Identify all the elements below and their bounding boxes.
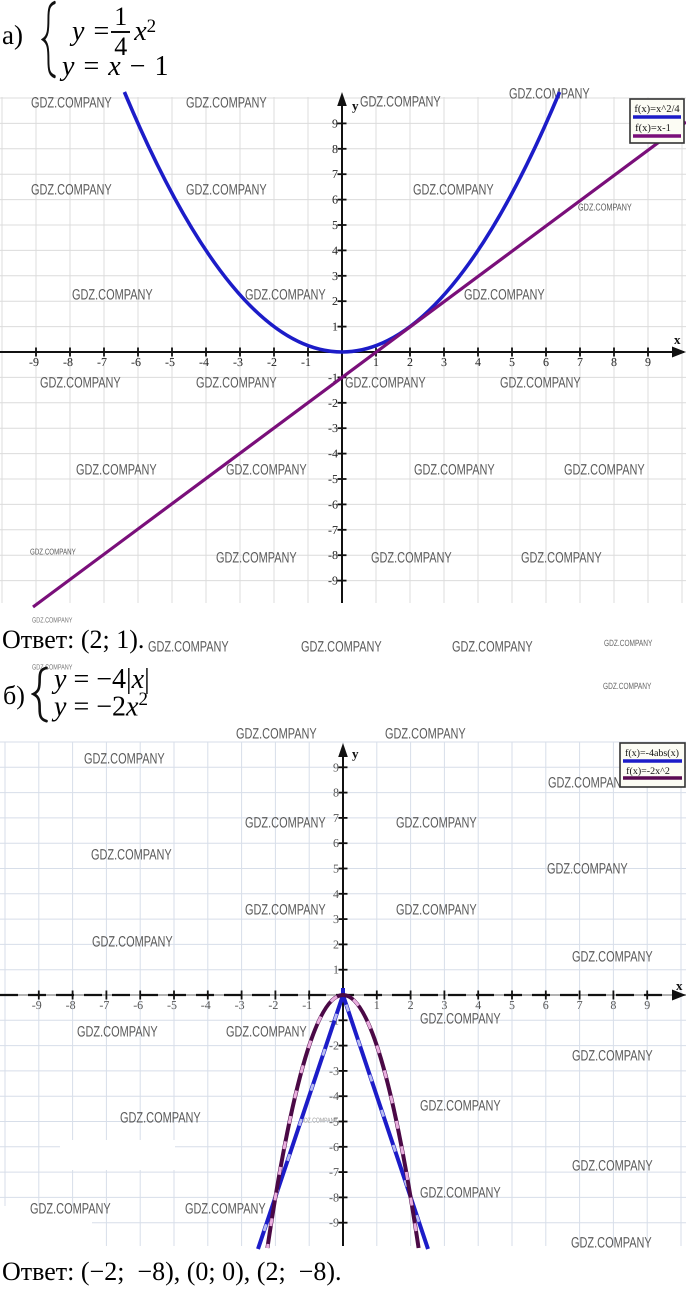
svg-text:GDZ.COMPANY: GDZ.COMPANY (420, 1010, 501, 1027)
svg-text:GDZ.COMPANY: GDZ.COMPANY (385, 725, 466, 742)
svg-text:6: 6 (543, 998, 549, 1012)
svg-text:x: x (676, 978, 683, 993)
svg-text:GDZ.COMPANY: GDZ.COMPANY (464, 286, 545, 303)
svg-text:GDZ.COMPANY: GDZ.COMPANY (301, 638, 382, 655)
svg-text:-7: -7 (99, 998, 109, 1012)
svg-text:-4: -4 (329, 1089, 339, 1103)
svg-text:GDZ.COMPANY: GDZ.COMPANY (571, 1234, 652, 1251)
svg-text:GDZ.COMPANY: GDZ.COMPANY (420, 1097, 501, 1114)
svg-text:-9: -9 (328, 574, 338, 588)
svg-text:f(x)=-2x^2: f(x)=-2x^2 (626, 766, 670, 777)
svg-text:GDZ.COMPANY: GDZ.COMPANY (521, 549, 602, 566)
svg-text:7: 7 (332, 167, 338, 181)
svg-text:-4: -4 (199, 355, 209, 369)
svg-text:8: 8 (332, 142, 338, 156)
svg-text:-8: -8 (328, 548, 338, 562)
svg-text:-8: -8 (63, 355, 73, 369)
svg-text:7: 7 (577, 355, 583, 369)
svg-text:-4: -4 (328, 447, 338, 461)
svg-text:GDZ.COMPANY: GDZ.COMPANY (300, 1117, 338, 1124)
svg-text:GDZ.COMPANY: GDZ.COMPANY (91, 846, 172, 863)
svg-text:GDZ.COMPANY: GDZ.COMPANY (371, 549, 452, 566)
svg-text:9: 9 (333, 760, 339, 774)
svg-text:GDZ.COMPANY: GDZ.COMPANY (76, 461, 157, 478)
svg-text:GDZ.COMPANY: GDZ.COMPANY (603, 681, 651, 691)
svg-text:-5: -5 (328, 472, 338, 486)
svg-text:8: 8 (611, 355, 617, 369)
svg-text:8: 8 (333, 786, 339, 800)
svg-text:2: 2 (407, 355, 413, 369)
svg-text:GDZ.COMPANY: GDZ.COMPANY (245, 286, 326, 303)
svg-text:GDZ.COMPANY: GDZ.COMPANY (604, 638, 652, 648)
svg-text:-8: -8 (66, 998, 76, 1012)
svg-text:GDZ.COMPANY: GDZ.COMPANY (572, 948, 653, 965)
svg-text:GDZ.COMPANY: GDZ.COMPANY (396, 901, 477, 918)
svg-text:3: 3 (332, 269, 338, 283)
svg-text:GDZ.COMPANY: GDZ.COMPANY (40, 374, 121, 391)
svg-text:-2: -2 (268, 998, 278, 1012)
svg-text:GDZ.COMPANY: GDZ.COMPANY (572, 1047, 653, 1064)
svg-text:9: 9 (645, 355, 651, 369)
svg-text:-3: -3 (235, 998, 245, 1012)
svg-text:9: 9 (644, 998, 650, 1012)
svg-text:-3: -3 (328, 421, 338, 435)
svg-text:5: 5 (509, 355, 515, 369)
svg-text:5: 5 (509, 998, 515, 1012)
svg-text:6: 6 (332, 193, 338, 207)
svg-text:GDZ.COMPANY: GDZ.COMPANY (77, 1023, 158, 1040)
svg-text:GDZ.COMPANY: GDZ.COMPANY (186, 94, 267, 111)
svg-text:GDZ.COMPANY: GDZ.COMPANY (84, 750, 165, 767)
svg-text:2: 2 (332, 294, 338, 308)
svg-text:GDZ.COMPANY: GDZ.COMPANY (31, 181, 112, 198)
svg-text:GDZ.COMPANY: GDZ.COMPANY (226, 461, 307, 478)
svg-text:GDZ.COMPANY: GDZ.COMPANY (578, 203, 632, 214)
svg-text:GDZ.COMPANY: GDZ.COMPANY (30, 547, 76, 557)
svg-text:-2: -2 (267, 355, 277, 369)
svg-text:4: 4 (333, 887, 339, 901)
svg-text:7: 7 (333, 811, 339, 825)
svg-text:GDZ.COMPANY: GDZ.COMPANY (396, 814, 477, 831)
svg-text:GDZ.COMPANY: GDZ.COMPANY (413, 181, 494, 198)
svg-text:-2: -2 (329, 1039, 339, 1053)
svg-text:GDZ.COMPANY: GDZ.COMPANY (32, 616, 72, 625)
svg-text:6: 6 (543, 355, 549, 369)
svg-text:8: 8 (610, 998, 616, 1012)
svg-text:GDZ.COMPANY: GDZ.COMPANY (509, 85, 590, 102)
svg-text:-6: -6 (328, 497, 338, 511)
svg-text:f(x)=x-1: f(x)=x-1 (635, 123, 671, 134)
svg-text:5: 5 (332, 218, 338, 232)
svg-text:GDZ.COMPANY: GDZ.COMPANY (148, 638, 229, 655)
svg-text:GDZ.COMPANY: GDZ.COMPANY (564, 461, 645, 478)
svg-text:GDZ.COMPANY: GDZ.COMPANY (452, 638, 533, 655)
svg-text:GDZ.COMPANY: GDZ.COMPANY (216, 549, 297, 566)
svg-text:-7: -7 (328, 523, 338, 537)
svg-text:y: y (352, 746, 359, 761)
svg-text:GDZ.COMPANY: GDZ.COMPANY (92, 933, 173, 950)
svg-text:2: 2 (333, 937, 339, 951)
svg-text:-1: -1 (302, 998, 312, 1012)
svg-text:3: 3 (441, 355, 447, 369)
svg-text:-8: -8 (329, 1190, 339, 1204)
svg-text:GDZ.COMPANY: GDZ.COMPANY (547, 860, 628, 877)
svg-text:GDZ.COMPANY: GDZ.COMPANY (572, 1157, 653, 1174)
svg-text:7: 7 (577, 998, 583, 1012)
svg-text:-9: -9 (29, 355, 39, 369)
svg-text:6: 6 (333, 836, 339, 850)
svg-text:-5: -5 (165, 355, 175, 369)
svg-text:4: 4 (475, 355, 481, 369)
svg-text:GDZ.COMPANY: GDZ.COMPANY (245, 814, 326, 831)
svg-text:-1: -1 (301, 355, 311, 369)
svg-text:GDZ.COMPANY: GDZ.COMPANY (226, 1023, 307, 1040)
svg-text:f(x)=-4abs(x): f(x)=-4abs(x) (625, 748, 679, 759)
svg-text:GDZ.COMPANY: GDZ.COMPANY (72, 286, 153, 303)
svg-text:GDZ.COMPANY: GDZ.COMPANY (500, 374, 581, 391)
svg-text:-9: -9 (32, 998, 42, 1012)
svg-text:3: 3 (333, 912, 339, 926)
svg-text:-3: -3 (233, 355, 243, 369)
svg-text:4: 4 (332, 243, 338, 257)
svg-text:2: 2 (408, 998, 414, 1012)
svg-text:-6: -6 (329, 1140, 339, 1154)
svg-text:GDZ.COMPANY: GDZ.COMPANY (245, 901, 326, 918)
svg-text:y: y (352, 98, 359, 113)
svg-text:1: 1 (374, 998, 380, 1012)
svg-text:1: 1 (332, 320, 338, 334)
svg-text:GDZ.COMPANY: GDZ.COMPANY (186, 181, 267, 198)
svg-text:-6: -6 (131, 355, 141, 369)
svg-text:GDZ.COMPANY: GDZ.COMPANY (120, 1109, 201, 1126)
svg-text:5: 5 (333, 862, 339, 876)
svg-text:-7: -7 (329, 1165, 339, 1179)
svg-text:GDZ.COMPANY: GDZ.COMPANY (345, 374, 426, 391)
svg-text:-3: -3 (329, 1064, 339, 1078)
svg-text:-4: -4 (201, 998, 211, 1012)
svg-text:x: x (674, 332, 681, 347)
svg-text:f(x)=x^2/4: f(x)=x^2/4 (634, 104, 680, 115)
svg-text:GDZ.COMPANY: GDZ.COMPANY (196, 374, 277, 391)
svg-text:9: 9 (332, 116, 338, 130)
svg-text:GDZ.COMPANY: GDZ.COMPANY (414, 461, 495, 478)
svg-text:-5: -5 (167, 998, 177, 1012)
svg-text:GDZ.COMPANY: GDZ.COMPANY (236, 725, 317, 742)
svg-text:-7: -7 (97, 355, 107, 369)
svg-text:1: 1 (373, 355, 379, 369)
svg-text:-6: -6 (133, 998, 143, 1012)
svg-text:GDZ.COMPANY: GDZ.COMPANY (548, 774, 629, 791)
svg-text:-9: -9 (329, 1216, 339, 1230)
svg-text:GDZ.COMPANY: GDZ.COMPANY (360, 93, 441, 110)
svg-text:GDZ.COMPANY: GDZ.COMPANY (31, 94, 112, 111)
svg-text:GDZ.COMPANY: GDZ.COMPANY (420, 1184, 501, 1201)
svg-text:GDZ.COMPANY: GDZ.COMPANY (185, 1200, 266, 1217)
svg-text:GDZ.COMPANY: GDZ.COMPANY (30, 1200, 111, 1217)
svg-text:-2: -2 (328, 396, 338, 410)
svg-text:1: 1 (333, 963, 339, 977)
